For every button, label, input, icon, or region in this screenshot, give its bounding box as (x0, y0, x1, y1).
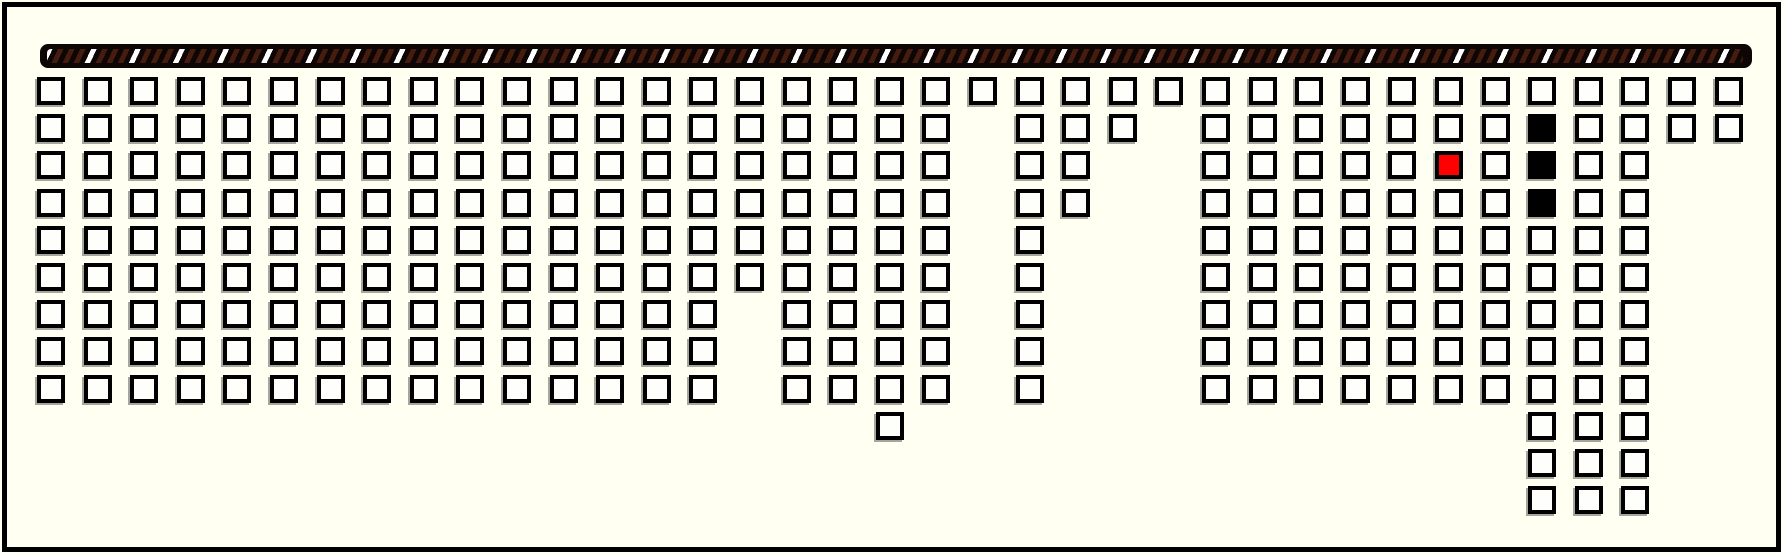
seat-available[interactable] (829, 375, 857, 403)
seat-available[interactable] (829, 189, 857, 217)
seat-available[interactable] (1621, 77, 1649, 105)
seat-available[interactable] (410, 151, 438, 179)
seat-available[interactable] (596, 151, 624, 179)
seat-available[interactable] (1621, 263, 1649, 291)
seat-available[interactable] (643, 337, 671, 365)
seat-available[interactable] (596, 337, 624, 365)
seat-available[interactable] (37, 226, 65, 254)
seat-available[interactable] (270, 337, 298, 365)
seat-available[interactable] (84, 337, 112, 365)
seat-available[interactable] (317, 226, 345, 254)
seat-available[interactable] (1575, 449, 1603, 477)
seat-available[interactable] (922, 189, 950, 217)
seat-available[interactable] (177, 77, 205, 105)
seat-available[interactable] (270, 77, 298, 105)
seat-available[interactable] (317, 189, 345, 217)
seat-available[interactable] (270, 189, 298, 217)
seat-available[interactable] (876, 375, 904, 403)
seat-available[interactable] (1621, 189, 1649, 217)
seat-available[interactable] (1342, 263, 1370, 291)
seat-available[interactable] (1435, 300, 1463, 328)
seat-available[interactable] (1575, 412, 1603, 440)
seat-available[interactable] (456, 263, 484, 291)
seat-available[interactable] (1482, 337, 1510, 365)
seat-available[interactable] (922, 300, 950, 328)
seat-available[interactable] (1295, 114, 1323, 142)
seat-available[interactable] (596, 189, 624, 217)
seat-available[interactable] (1202, 337, 1230, 365)
seat-available[interactable] (922, 226, 950, 254)
seat-available[interactable] (363, 300, 391, 328)
seat-available[interactable] (1528, 486, 1556, 514)
seat-available[interactable] (177, 226, 205, 254)
seat-available[interactable] (363, 114, 391, 142)
screen-bar (40, 44, 1752, 68)
seat-available[interactable] (1249, 263, 1277, 291)
seat-available[interactable] (130, 151, 158, 179)
seat-available[interactable] (1109, 77, 1137, 105)
seat-available[interactable] (1435, 337, 1463, 365)
seat-available[interactable] (596, 226, 624, 254)
seat-available[interactable] (317, 375, 345, 403)
seat-available[interactable] (1342, 300, 1370, 328)
seat-available[interactable] (317, 114, 345, 142)
seat-available[interactable] (1482, 189, 1510, 217)
seat-available[interactable] (1249, 77, 1277, 105)
seat-available[interactable] (503, 263, 531, 291)
seat-available[interactable] (876, 412, 904, 440)
seat-available[interactable] (317, 77, 345, 105)
screen-bar-stripes (47, 49, 1743, 63)
seat-available[interactable] (317, 263, 345, 291)
seat-available[interactable] (130, 189, 158, 217)
seat-available[interactable] (876, 77, 904, 105)
seat-available[interactable] (456, 337, 484, 365)
seat-available[interactable] (736, 189, 764, 217)
seat-available[interactable] (1528, 77, 1556, 105)
seat-available[interactable] (1016, 300, 1044, 328)
seat-available[interactable] (456, 77, 484, 105)
seat-available[interactable] (84, 263, 112, 291)
seat-available[interactable] (1528, 337, 1556, 365)
seat-available[interactable] (37, 114, 65, 142)
seat-available[interactable] (1202, 77, 1230, 105)
seat-available[interactable] (363, 151, 391, 179)
seat-available[interactable] (503, 300, 531, 328)
seat-available[interactable] (829, 77, 857, 105)
seat-available[interactable] (689, 263, 717, 291)
seat-available[interactable] (1435, 114, 1463, 142)
seat-available[interactable] (503, 337, 531, 365)
seat-available[interactable] (1295, 77, 1323, 105)
seat-available[interactable] (643, 114, 671, 142)
seat-available[interactable] (177, 337, 205, 365)
seat-available[interactable] (689, 375, 717, 403)
seat-available[interactable] (1715, 77, 1743, 105)
seat-available[interactable] (1295, 375, 1323, 403)
seat-available[interactable] (1295, 189, 1323, 217)
seat-available[interactable] (456, 375, 484, 403)
seat-available[interactable] (550, 375, 578, 403)
seat-available[interactable] (130, 263, 158, 291)
seat-available[interactable] (1482, 375, 1510, 403)
seat-available[interactable] (922, 337, 950, 365)
seat-available[interactable] (177, 189, 205, 217)
seat-available[interactable] (1249, 114, 1277, 142)
seat-available[interactable] (736, 226, 764, 254)
seat-available[interactable] (876, 114, 904, 142)
seat-available[interactable] (1575, 486, 1603, 514)
seat-available[interactable] (84, 151, 112, 179)
seat-available[interactable] (37, 77, 65, 105)
seat-available[interactable] (223, 337, 251, 365)
seat-available[interactable] (550, 77, 578, 105)
seat-available[interactable] (829, 226, 857, 254)
seat-available[interactable] (223, 151, 251, 179)
seat-available[interactable] (84, 77, 112, 105)
seat-available[interactable] (1575, 114, 1603, 142)
seat-available[interactable] (37, 189, 65, 217)
seat-selected[interactable] (1435, 151, 1463, 179)
seat-available[interactable] (922, 114, 950, 142)
seat-available[interactable] (1342, 226, 1370, 254)
seat-available[interactable] (410, 375, 438, 403)
seat-available[interactable] (84, 226, 112, 254)
seat-available[interactable] (1668, 77, 1696, 105)
seat-available[interactable] (1621, 300, 1649, 328)
seat-available[interactable] (1435, 189, 1463, 217)
seat-available[interactable] (1016, 114, 1044, 142)
seat-available[interactable] (1062, 77, 1090, 105)
seat-available[interactable] (829, 300, 857, 328)
seat-available[interactable] (1388, 263, 1416, 291)
seat-available[interactable] (1016, 375, 1044, 403)
seat-available[interactable] (177, 300, 205, 328)
seat-available[interactable] (1575, 189, 1603, 217)
seat-available[interactable] (363, 337, 391, 365)
seat-available[interactable] (1621, 151, 1649, 179)
seat-available[interactable] (503, 151, 531, 179)
seat-available[interactable] (783, 263, 811, 291)
seat-available[interactable] (643, 226, 671, 254)
seat-available[interactable] (550, 263, 578, 291)
seat-available[interactable] (1295, 263, 1323, 291)
seat-available[interactable] (1528, 226, 1556, 254)
seat-available[interactable] (1388, 77, 1416, 105)
seat-available[interactable] (1482, 151, 1510, 179)
seat-available[interactable] (317, 151, 345, 179)
seat-available[interactable] (1388, 226, 1416, 254)
seat-available[interactable] (1016, 77, 1044, 105)
seat-available[interactable] (689, 151, 717, 179)
seat-available[interactable] (177, 375, 205, 403)
seat-available[interactable] (1715, 114, 1743, 142)
seat-available[interactable] (130, 300, 158, 328)
seat-available[interactable] (1295, 226, 1323, 254)
seat-available[interactable] (1482, 263, 1510, 291)
seat-available[interactable] (1249, 226, 1277, 254)
seat-available[interactable] (1388, 151, 1416, 179)
seat-available[interactable] (643, 189, 671, 217)
seat-available[interactable] (1295, 337, 1323, 365)
seat-available[interactable] (1575, 151, 1603, 179)
seat-available[interactable] (1295, 300, 1323, 328)
seat-available[interactable] (550, 300, 578, 328)
seat-available[interactable] (410, 189, 438, 217)
seat-available[interactable] (130, 375, 158, 403)
seat-available[interactable] (1575, 300, 1603, 328)
seat-available[interactable] (1388, 300, 1416, 328)
seat-available[interactable] (1249, 375, 1277, 403)
seat-available[interactable] (876, 337, 904, 365)
seat-available[interactable] (1016, 226, 1044, 254)
seat-available[interactable] (689, 300, 717, 328)
seat-available[interactable] (1482, 300, 1510, 328)
seat-available[interactable] (643, 375, 671, 403)
seat-available[interactable] (783, 337, 811, 365)
seat-available[interactable] (596, 300, 624, 328)
seat-available[interactable] (410, 300, 438, 328)
seat-available[interactable] (410, 337, 438, 365)
seat-available[interactable] (783, 375, 811, 403)
seat-available[interactable] (969, 77, 997, 105)
seat-available[interactable] (223, 375, 251, 403)
seat-available[interactable] (922, 151, 950, 179)
seat-available[interactable] (876, 151, 904, 179)
seat-available[interactable] (1388, 189, 1416, 217)
seat-available[interactable] (1202, 189, 1230, 217)
seat-available[interactable] (1575, 375, 1603, 403)
seat-available[interactable] (922, 263, 950, 291)
seat-available[interactable] (783, 300, 811, 328)
seat-available[interactable] (317, 337, 345, 365)
seat-available[interactable] (1062, 114, 1090, 142)
seat-available[interactable] (363, 375, 391, 403)
seat-available[interactable] (1062, 151, 1090, 179)
seat-available[interactable] (363, 189, 391, 217)
seat-available[interactable] (1342, 77, 1370, 105)
seat-available[interactable] (363, 77, 391, 105)
seat-available[interactable] (503, 77, 531, 105)
seat-available[interactable] (270, 263, 298, 291)
seat-available[interactable] (1575, 337, 1603, 365)
seat-available[interactable] (223, 226, 251, 254)
seat-available[interactable] (1202, 226, 1230, 254)
seat-available[interactable] (270, 114, 298, 142)
seat-available[interactable] (1435, 226, 1463, 254)
seat-available[interactable] (922, 77, 950, 105)
seat-available[interactable] (1528, 375, 1556, 403)
seat-available[interactable] (1621, 114, 1649, 142)
seat-available[interactable] (37, 263, 65, 291)
seat-available[interactable] (783, 189, 811, 217)
seat-occupied (1528, 114, 1556, 142)
seat-available[interactable] (550, 151, 578, 179)
seat-available[interactable] (223, 114, 251, 142)
seat-available[interactable] (1342, 189, 1370, 217)
seat-available[interactable] (783, 151, 811, 179)
seat-available[interactable] (550, 337, 578, 365)
seat-available[interactable] (1342, 151, 1370, 179)
seat-available[interactable] (456, 189, 484, 217)
seat-available[interactable] (1575, 263, 1603, 291)
seat-available[interactable] (503, 226, 531, 254)
seat-available[interactable] (1482, 114, 1510, 142)
seat-available[interactable] (503, 375, 531, 403)
seat-available[interactable] (1435, 77, 1463, 105)
seat-available[interactable] (1668, 114, 1696, 142)
seat-occupied (1528, 151, 1556, 179)
seat-available[interactable] (84, 375, 112, 403)
seat-available[interactable] (922, 375, 950, 403)
seat-available[interactable] (1528, 300, 1556, 328)
seat-available[interactable] (1342, 337, 1370, 365)
seat-available[interactable] (456, 151, 484, 179)
seat-available[interactable] (1621, 449, 1649, 477)
seat-available[interactable] (223, 300, 251, 328)
seat-available[interactable] (363, 263, 391, 291)
seat-available[interactable] (410, 77, 438, 105)
seat-available[interactable] (37, 337, 65, 365)
seat-available[interactable] (1062, 189, 1090, 217)
seat-available[interactable] (410, 226, 438, 254)
seat-available[interactable] (130, 114, 158, 142)
seat-available[interactable] (1528, 412, 1556, 440)
seat-available[interactable] (643, 263, 671, 291)
seat-available[interactable] (37, 375, 65, 403)
seat-available[interactable] (1202, 114, 1230, 142)
seating-chart-frame (2, 2, 1781, 552)
seat-available[interactable] (876, 226, 904, 254)
seat-available[interactable] (317, 300, 345, 328)
seat-available[interactable] (876, 189, 904, 217)
seat-available[interactable] (177, 151, 205, 179)
seat-available[interactable] (596, 263, 624, 291)
seat-available[interactable] (1528, 449, 1556, 477)
seat-available[interactable] (1016, 337, 1044, 365)
seat-available[interactable] (1249, 151, 1277, 179)
seat-available[interactable] (223, 189, 251, 217)
seat-available[interactable] (503, 189, 531, 217)
seat-available[interactable] (829, 337, 857, 365)
seat-available[interactable] (1621, 412, 1649, 440)
seat-available[interactable] (1388, 337, 1416, 365)
seat-available[interactable] (130, 77, 158, 105)
seat-available[interactable] (1342, 375, 1370, 403)
seat-available[interactable] (1388, 114, 1416, 142)
seat-available[interactable] (829, 263, 857, 291)
seat-available[interactable] (1249, 300, 1277, 328)
seat-available[interactable] (550, 189, 578, 217)
seat-available[interactable] (503, 114, 531, 142)
seat-available[interactable] (736, 151, 764, 179)
seat-available[interactable] (270, 226, 298, 254)
seat-available[interactable] (130, 337, 158, 365)
seat-available[interactable] (550, 226, 578, 254)
seat-available[interactable] (1016, 263, 1044, 291)
seat-available[interactable] (643, 77, 671, 105)
seat-available[interactable] (1249, 189, 1277, 217)
seat-available[interactable] (130, 226, 158, 254)
seat-available[interactable] (37, 151, 65, 179)
seat-available[interactable] (689, 189, 717, 217)
seat-available[interactable] (456, 226, 484, 254)
seat-available[interactable] (736, 114, 764, 142)
seat-available[interactable] (876, 300, 904, 328)
seat-available[interactable] (363, 226, 391, 254)
seat-available[interactable] (1575, 226, 1603, 254)
seat-available[interactable] (643, 151, 671, 179)
seat-available[interactable] (1295, 151, 1323, 179)
seat-available[interactable] (270, 375, 298, 403)
seat-available[interactable] (1016, 189, 1044, 217)
seat-available[interactable] (177, 263, 205, 291)
seat-available[interactable] (1482, 77, 1510, 105)
seat-available[interactable] (1249, 337, 1277, 365)
seat-available[interactable] (456, 300, 484, 328)
seat-available[interactable] (1202, 263, 1230, 291)
seat-available[interactable] (1435, 375, 1463, 403)
seat-available[interactable] (1202, 151, 1230, 179)
seat-available[interactable] (37, 300, 65, 328)
seat-available[interactable] (596, 77, 624, 105)
seat-available[interactable] (689, 77, 717, 105)
seat-available[interactable] (410, 114, 438, 142)
seat-available[interactable] (876, 263, 904, 291)
seat-available[interactable] (270, 151, 298, 179)
seat-available[interactable] (736, 263, 764, 291)
seat-available[interactable] (1575, 77, 1603, 105)
seat-available[interactable] (1202, 300, 1230, 328)
seat-available[interactable] (1016, 151, 1044, 179)
seat-available[interactable] (689, 114, 717, 142)
seat-available[interactable] (1621, 486, 1649, 514)
seat-available[interactable] (177, 114, 205, 142)
seat-available[interactable] (1155, 77, 1183, 105)
seat-available[interactable] (689, 226, 717, 254)
seat-available[interactable] (1621, 226, 1649, 254)
seat-available[interactable] (223, 77, 251, 105)
seat-available[interactable] (1342, 114, 1370, 142)
seat-available[interactable] (1621, 337, 1649, 365)
seat-available[interactable] (596, 114, 624, 142)
seat-available[interactable] (1109, 114, 1137, 142)
seat-available[interactable] (550, 114, 578, 142)
seat-available[interactable] (829, 114, 857, 142)
seat-available[interactable] (84, 300, 112, 328)
seat-available[interactable] (1388, 375, 1416, 403)
seat-available[interactable] (783, 77, 811, 105)
seat-available[interactable] (1621, 375, 1649, 403)
seat-available[interactable] (736, 77, 764, 105)
seat-available[interactable] (689, 337, 717, 365)
seat-available[interactable] (456, 114, 484, 142)
seat-available[interactable] (783, 226, 811, 254)
seat-available[interactable] (270, 300, 298, 328)
seat-available[interactable] (1482, 226, 1510, 254)
seat-available[interactable] (84, 114, 112, 142)
seat-available[interactable] (1202, 375, 1230, 403)
seat-available[interactable] (1435, 263, 1463, 291)
seat-available[interactable] (596, 375, 624, 403)
seat-available[interactable] (223, 263, 251, 291)
seat-available[interactable] (1528, 263, 1556, 291)
seat-available[interactable] (829, 151, 857, 179)
seat-available[interactable] (783, 114, 811, 142)
seat-available[interactable] (410, 263, 438, 291)
seat-available[interactable] (643, 300, 671, 328)
seat-available[interactable] (84, 189, 112, 217)
